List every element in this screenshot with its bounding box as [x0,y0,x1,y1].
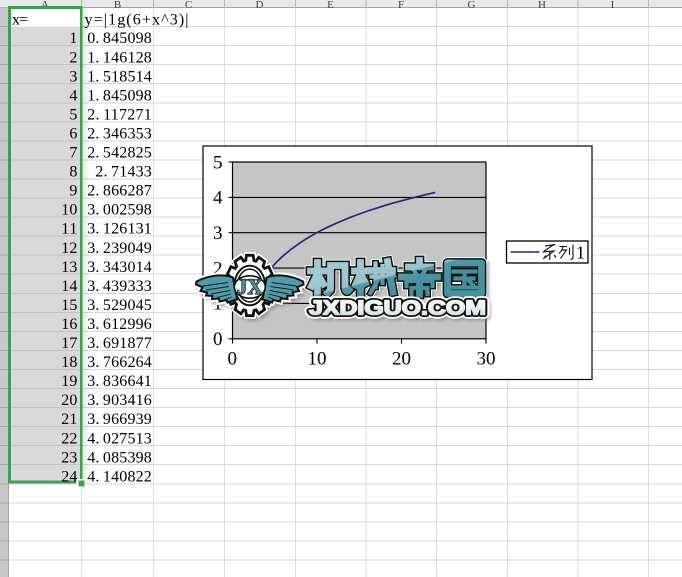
svg-text:D: D [256,0,264,11]
svg-text:4. 085398: 4. 085398 [87,449,152,466]
svg-text:17: 17 [61,335,77,352]
svg-text:3. 766264: 3. 766264 [87,354,152,371]
svg-text:0. 845098: 0. 845098 [87,30,152,47]
svg-text:2. 542825: 2. 542825 [87,145,152,162]
svg-text:4. 140822: 4. 140822 [87,468,152,485]
svg-text:19: 19 [61,373,77,390]
svg-text:23: 23 [61,449,77,466]
svg-text:11: 11 [61,221,77,238]
svg-text:2. 346353: 2. 346353 [87,125,152,142]
svg-text:F: F [398,0,404,11]
svg-text:3. 343014: 3. 343014 [87,259,152,276]
svg-text:B: B [114,0,121,11]
svg-text:3. 966939: 3. 966939 [87,411,152,428]
svg-text:E: E [327,0,334,11]
svg-text:2. 117271: 2. 117271 [87,106,152,123]
svg-text:10: 10 [308,349,327,370]
svg-text:8: 8 [69,164,77,181]
svg-text:3. 529045: 3. 529045 [87,297,152,314]
svg-text:12: 12 [61,240,77,257]
svg-text:2: 2 [69,49,77,66]
svg-text:4. 027513: 4. 027513 [87,430,152,447]
svg-text:1. 845098: 1. 845098 [87,87,152,104]
svg-text:6: 6 [69,125,77,142]
svg-text:G: G [468,0,476,11]
svg-text:3. 002598: 3. 002598 [87,202,152,219]
svg-text:14: 14 [61,278,77,295]
svg-text:1. 518514: 1. 518514 [87,68,152,85]
svg-text:30: 30 [477,349,496,370]
svg-text:2. 866287: 2. 866287 [87,183,152,200]
svg-text:13: 13 [61,259,77,276]
svg-text:2. 71433: 2. 71433 [95,164,152,181]
svg-text:1: 1 [576,243,585,263]
svg-text:0: 0 [213,329,223,350]
svg-text:7: 7 [69,145,77,162]
svg-text:0: 0 [228,349,238,370]
svg-text:3. 612996: 3. 612996 [87,316,152,333]
svg-text:I: I [611,0,615,11]
svg-text:20: 20 [61,392,77,409]
svg-text:JXDIGUO.COM: JXDIGUO.COM [309,297,486,320]
svg-text:21: 21 [61,411,77,428]
svg-text:15: 15 [61,297,77,314]
svg-text:18: 18 [61,354,77,371]
svg-text:C: C [185,0,192,11]
svg-text:4: 4 [213,188,223,209]
svg-text:3: 3 [69,68,77,85]
svg-text:5: 5 [69,106,77,123]
svg-text:10: 10 [61,202,77,219]
svg-text:1. 146128: 1. 146128 [87,49,152,66]
svg-text:5: 5 [213,152,223,173]
svg-text:3. 691877: 3. 691877 [87,335,152,352]
svg-text:24: 24 [61,468,77,485]
svg-text:y=|1g(6+x^3)|: y=|1g(6+x^3)| [85,12,189,29]
svg-text:3. 903416: 3. 903416 [87,392,152,409]
svg-text:A: A [41,0,49,11]
svg-text:3. 836641: 3. 836641 [87,373,152,390]
svg-text:16: 16 [61,316,77,333]
svg-text:JX: JX [237,274,263,299]
svg-text:20: 20 [392,349,411,370]
svg-text:4: 4 [69,87,77,104]
svg-text:1: 1 [69,30,77,47]
svg-text:22: 22 [61,430,77,447]
svg-text:3. 126131: 3. 126131 [87,221,152,238]
svg-text:H: H [538,0,546,11]
svg-text:x=: x= [12,12,28,29]
svg-text:3. 239049: 3. 239049 [87,240,152,257]
svg-text:3: 3 [213,223,223,244]
svg-text:3. 439333: 3. 439333 [87,278,152,295]
svg-text:9: 9 [69,183,77,200]
